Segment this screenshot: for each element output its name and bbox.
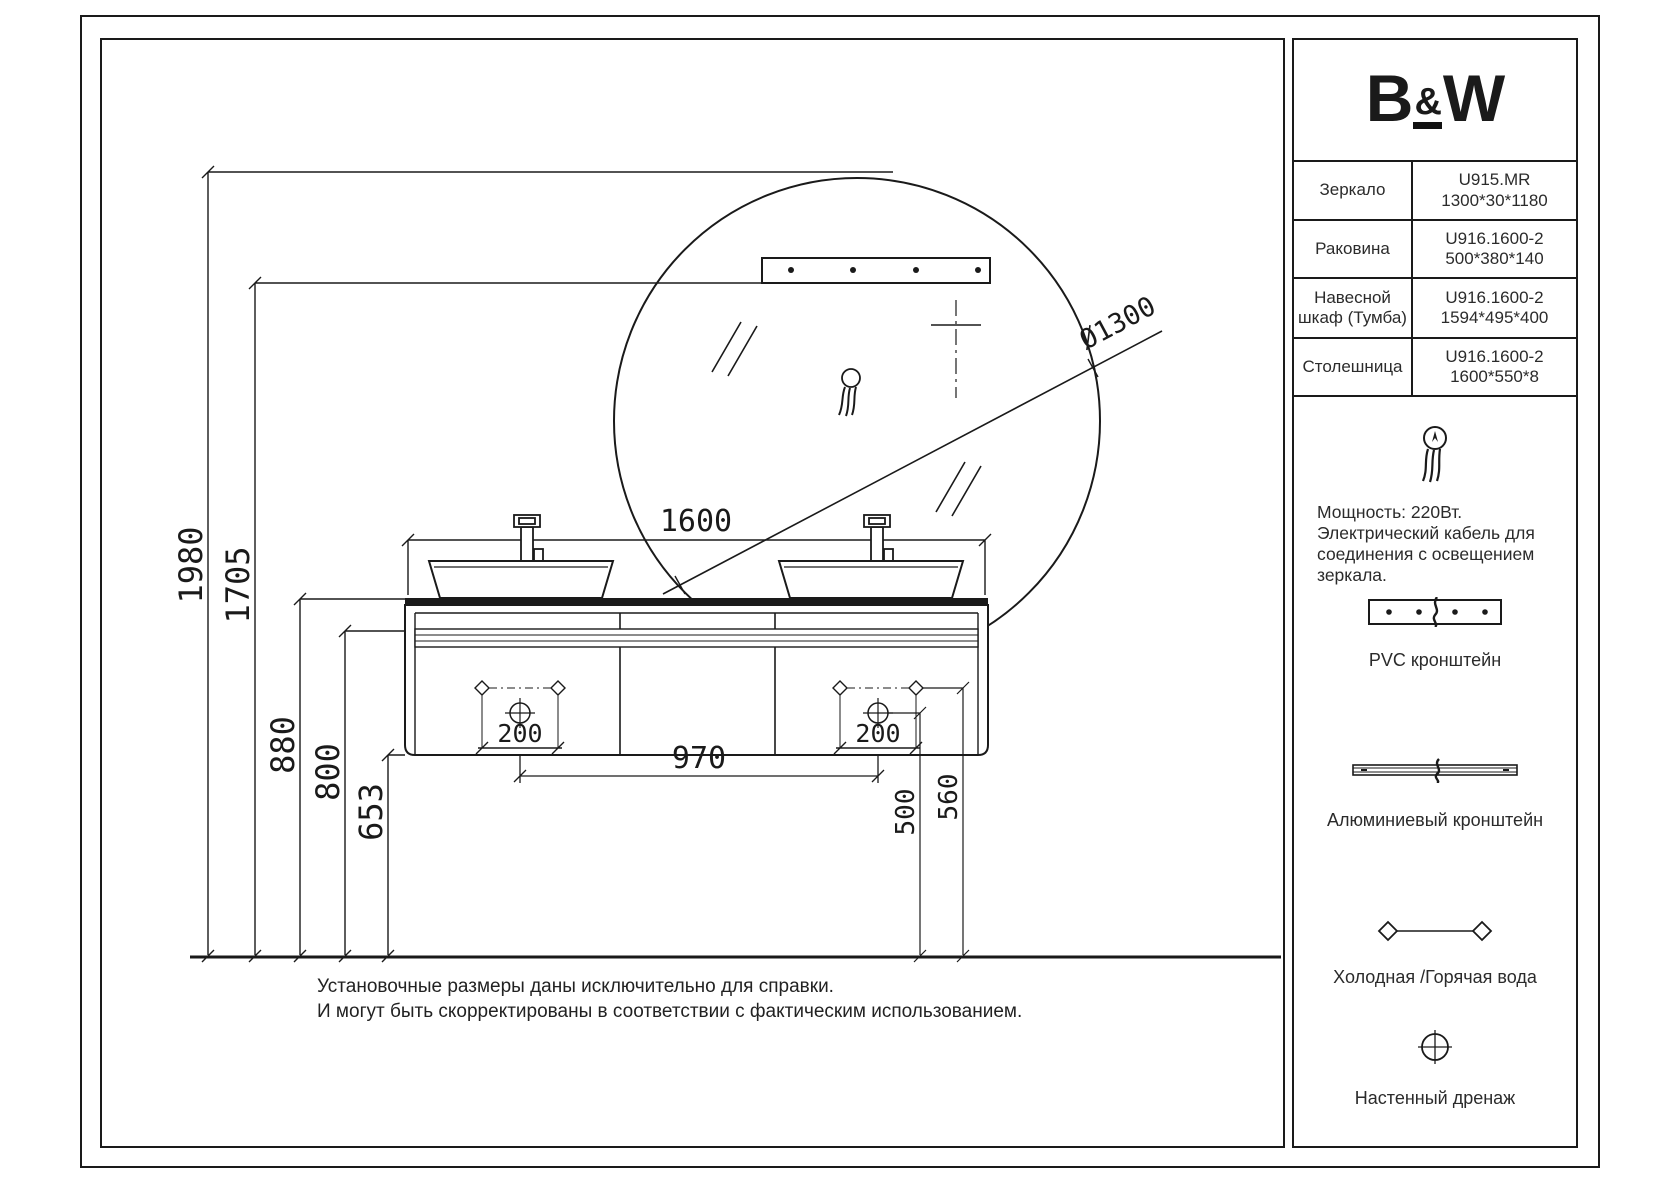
sink-left bbox=[429, 561, 613, 598]
mirror-glass-marks bbox=[712, 322, 981, 516]
power-note-line: зеркала. bbox=[1317, 565, 1535, 586]
spec-code: U916.1600-2 bbox=[1416, 288, 1573, 308]
spec-value: U916.1600-2 1594*495*400 bbox=[1412, 278, 1576, 338]
aluminum-bracket-icon bbox=[1294, 757, 1576, 783]
dim-label-970: 970 bbox=[672, 741, 726, 776]
dim-label-1600: 1600 bbox=[660, 504, 732, 539]
dim-label-200-left: 200 bbox=[497, 719, 542, 748]
dim-label-560: 560 bbox=[934, 774, 964, 821]
power-cable-icon bbox=[1294, 425, 1576, 491]
cold-hot-water-icon bbox=[1294, 919, 1576, 943]
aluminum-bracket-label: Алюминиевый кронштейн bbox=[1294, 810, 1576, 831]
table-row: Навесной шкаф (Тумба) U916.1600-2 1594*4… bbox=[1294, 278, 1576, 338]
pvc-bracket-icon bbox=[1294, 597, 1576, 627]
spec-name: Раковина bbox=[1294, 220, 1412, 278]
power-note-line: соединения с освещением bbox=[1317, 544, 1535, 565]
legend-area: Мощность: 220Вт. Электрический кабель дл… bbox=[1294, 397, 1576, 1145]
title-block-panel: B & W Зеркало U915.MR 1300*30*1180 Раков… bbox=[1292, 38, 1578, 1148]
pvc-bracket-label: PVC кронштейн bbox=[1294, 650, 1576, 671]
spec-name: Навесной шкаф (Тумба) bbox=[1294, 278, 1412, 338]
logo-letter-b: B bbox=[1366, 65, 1413, 131]
spec-size: 1600*550*8 bbox=[1416, 367, 1573, 387]
spec-value: U916.1600-2 1600*550*8 bbox=[1412, 338, 1576, 396]
footnote-line-2: И могут быть скорректированы в соответст… bbox=[317, 1001, 1022, 1023]
spec-size: 1300*30*1180 bbox=[1416, 191, 1573, 211]
dim-label-800: 800 bbox=[309, 743, 347, 801]
mirror-diameter-line bbox=[663, 331, 1162, 594]
table-row: Столешница U916.1600-2 1600*550*8 bbox=[1294, 338, 1576, 396]
footnote-line-1: Установочные размеры даны исключительно … bbox=[317, 976, 834, 998]
sink-right bbox=[779, 561, 963, 598]
mirror-cable-icon bbox=[839, 369, 860, 416]
spec-name: Столешница bbox=[1294, 338, 1412, 396]
spec-table: Зеркало U915.MR 1300*30*1180 Раковина U9… bbox=[1294, 162, 1576, 397]
brand-logo: B & W bbox=[1366, 65, 1504, 136]
power-note-line: Электрический кабель для bbox=[1317, 523, 1535, 544]
spec-code: U916.1600-2 bbox=[1416, 229, 1573, 249]
drawing-sheet: 1980 1705 880 800 653 Ø1300 bbox=[0, 0, 1680, 1188]
dim-label-653: 653 bbox=[352, 783, 390, 841]
logo-ampersand: & bbox=[1413, 83, 1441, 129]
drawing-area-frame: 1980 1705 880 800 653 Ø1300 bbox=[100, 38, 1285, 1148]
dim-label-200-right: 200 bbox=[855, 719, 900, 748]
countertop bbox=[405, 598, 988, 605]
power-note: Мощность: 220Вт. Электрический кабель дл… bbox=[1317, 502, 1535, 586]
dim-label-1705: 1705 bbox=[219, 546, 257, 623]
cold-hot-water-label: Холодная /Горячая вода bbox=[1294, 967, 1576, 988]
wall-drain-icon bbox=[1294, 1025, 1576, 1069]
logo-letter-w: W bbox=[1443, 65, 1504, 131]
dim-label-500: 500 bbox=[891, 789, 921, 836]
logo-box: B & W bbox=[1294, 40, 1576, 162]
cabinet-towel-rail bbox=[415, 629, 978, 647]
dim-label-mirror-diameter: Ø1300 bbox=[1075, 291, 1161, 357]
dim-label-1980: 1980 bbox=[172, 526, 210, 603]
table-row: Зеркало U915.MR 1300*30*1180 bbox=[1294, 162, 1576, 220]
power-note-line: Мощность: 220Вт. bbox=[1317, 502, 1535, 523]
spec-code: U915.MR bbox=[1416, 170, 1573, 190]
spec-value: U916.1600-2 500*380*140 bbox=[1412, 220, 1576, 278]
wall-drain-label: Настенный дренаж bbox=[1294, 1088, 1576, 1109]
spec-name: Зеркало bbox=[1294, 162, 1412, 220]
mirror-mounting-bracket bbox=[762, 258, 990, 283]
spec-size: 1594*495*400 bbox=[1416, 308, 1573, 328]
dim-line-653 bbox=[382, 749, 405, 962]
spec-code: U916.1600-2 bbox=[1416, 347, 1573, 367]
spec-size: 500*380*140 bbox=[1416, 249, 1573, 269]
spec-value: U915.MR 1300*30*1180 bbox=[1412, 162, 1576, 220]
dim-label-880: 880 bbox=[264, 716, 302, 774]
table-row: Раковина U916.1600-2 500*380*140 bbox=[1294, 220, 1576, 278]
